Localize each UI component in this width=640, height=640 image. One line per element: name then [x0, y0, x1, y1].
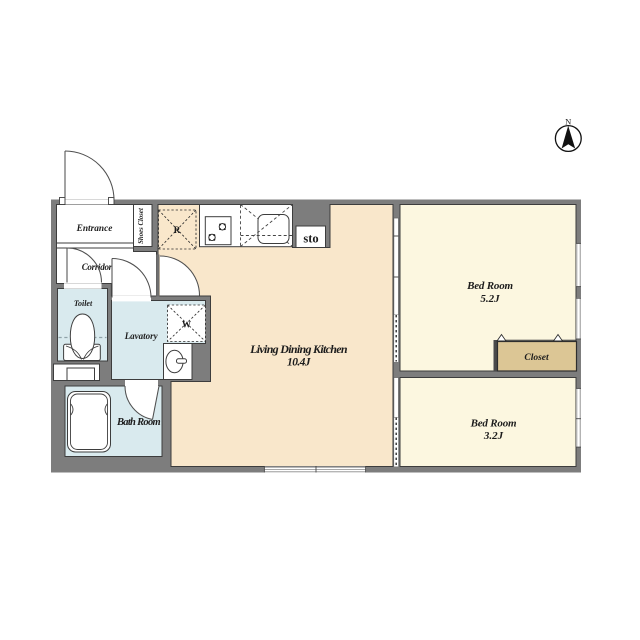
svg-text:R: R	[174, 225, 181, 235]
svg-text:Toilet: Toilet	[74, 299, 93, 308]
svg-text:Bed Room: Bed Room	[470, 418, 517, 430]
svg-text:Living Dining Kitchen: Living Dining Kitchen	[249, 342, 348, 356]
svg-text:Bed Room: Bed Room	[466, 280, 513, 292]
svg-text:Closet: Closet	[524, 353, 549, 363]
svg-text:Entrance: Entrance	[76, 224, 113, 234]
svg-text:Corridor: Corridor	[82, 262, 113, 272]
svg-text:Bath Room: Bath Room	[116, 417, 161, 428]
svg-text:Lavatory: Lavatory	[124, 331, 159, 341]
svg-text:10.4J: 10.4J	[287, 357, 312, 369]
svg-text:W: W	[182, 320, 191, 330]
svg-text:N: N	[565, 117, 571, 127]
svg-text:3.2J: 3.2J	[483, 430, 504, 442]
svg-text:sto: sto	[303, 232, 318, 246]
svg-text:5.2J: 5.2J	[480, 293, 500, 305]
svg-text:Shoes Closet: Shoes Closet	[138, 207, 145, 244]
